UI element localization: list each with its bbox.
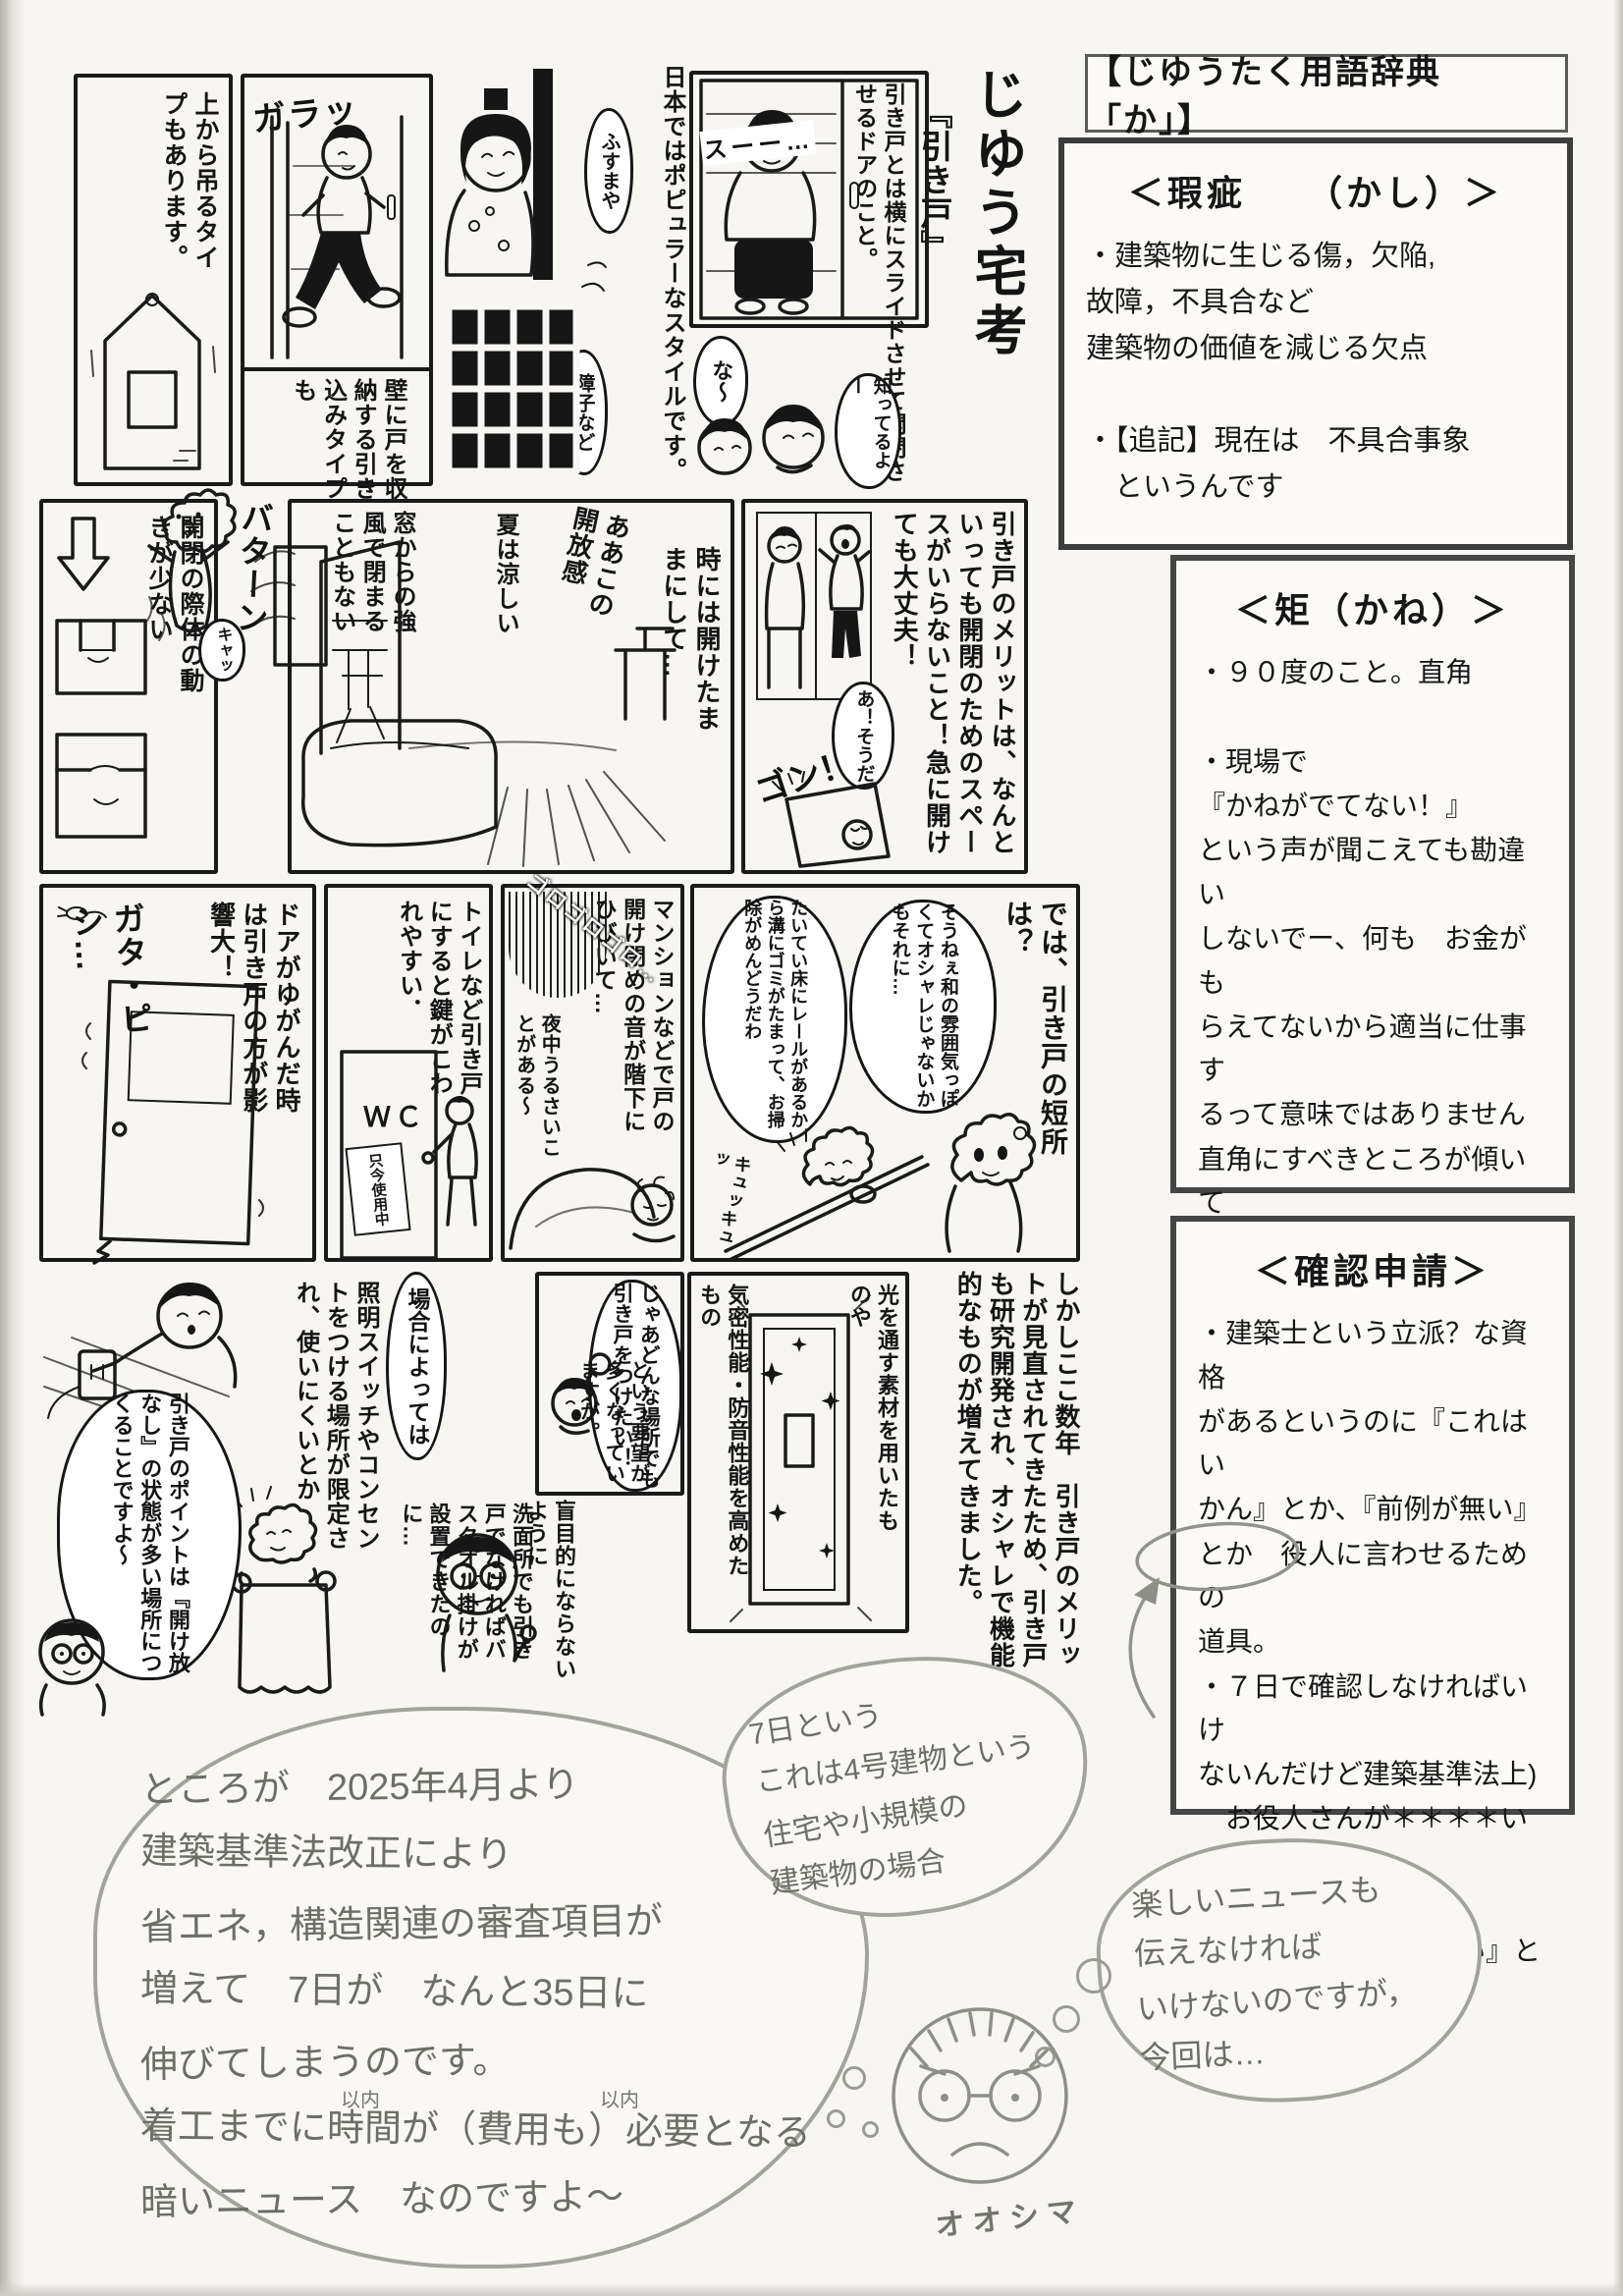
handwritten-note-inai2: 以内	[600, 2066, 639, 2135]
thought-trail-circle	[827, 2109, 845, 2128]
glass-door-drawing	[693, 75, 925, 324]
handwritten-news-lines: ところが 2025年4月より建築基準法改正により省エネ，構造関連の審査項目が増え…	[140, 1752, 822, 2233]
panel-hanging: 上から吊るタイプもあります。	[74, 74, 233, 486]
panel-glassdoor-reaction: な〜 知ってるよー	[687, 330, 1027, 493]
pencil-circle-7days	[1114, 1512, 1380, 1723]
panel-garatto: ガラッ 壁に戸を収納する引き込みタイプも	[241, 74, 433, 486]
scan-shadow-right	[1613, 0, 1623, 2296]
term-title-kakunin: ＜確認申請＞	[1198, 1243, 1547, 1294]
scan-shadow-left	[0, 0, 26, 2296]
term-box-kane: ＜矩（かね）＞ ・９０度のこと。直角・現場で『かねがでてない！』という声が聞こえ…	[1170, 555, 1575, 1193]
handwritten-4gou-lines: 7日というこれは4号建物という住宅や小規模の建築物の場合	[745, 1667, 1069, 1911]
handwritten-note-inai1: 以内	[341, 2066, 380, 2135]
thought-trail-circle	[862, 2121, 879, 2138]
sparkle-door-drawing	[738, 1297, 866, 1621]
speech-bubble-baai: 場合によっては	[386, 1272, 447, 1460]
fusuma-caption: 日本ではポピュラーなスタイルです。	[656, 65, 686, 495]
panel-merit: 引き戸のメリットは、なんといっても開閉のためのスペースがいらないこと！急に開けて…	[741, 499, 1028, 874]
merit-caption: 引き戸のメリットは、なんといっても開閉のためのスペースがいらないこと！急に開けて…	[888, 511, 1018, 870]
wc-sign-label: ＷＣ	[363, 1096, 426, 1135]
speech-bubble-rail: たいてい床にレールがあるから溝にゴミがたまって、お掃除がめんどうだわ	[702, 896, 847, 1143]
two-men-drawing	[687, 387, 835, 495]
term-title-kashi: ＜瑕疵 （かし）＞	[1086, 165, 1545, 216]
scan-shadow-bottom	[0, 2282, 1623, 2296]
panel-outlet: 場合によっては 照明スイッチやコンセントをつける場所が限定され、使いにくいとか …	[25, 1269, 457, 1721]
panel-wind: バターン キャッ	[137, 444, 339, 684]
thought-trail-circle	[1076, 1958, 1111, 1994]
warped-door-drawing	[51, 905, 297, 1259]
panel-warp: ドアがゆがんだ時は引き戸の方が影響大！ ガタ・ピシ…	[39, 884, 316, 1262]
bumped-box-drawing	[773, 770, 900, 868]
scanned-comic-page: 【じゆうたく用語辞典 「か」】 ＜瑕疵 （かし）＞ ・建築物に生じる傷，欠陥,故…	[0, 0, 1623, 2296]
dictionary-title: 【じゆうたく用語辞典 「か」】	[1088, 45, 1565, 141]
term-body-kashi: ・建築物に生じる傷，欠陥,故障，不具合など建築物の価値を減じる欠点・【追記】現在…	[1086, 234, 1545, 511]
panel-mansion: マンションなどで戸の開け閉めの音が階下にひびいて… ゴロゴロゴロ… 夜中うるさい…	[501, 884, 684, 1262]
living-room-drawing	[292, 503, 730, 870]
dictionary-header-box: 【じゆうたく用語辞典 「か」】	[1085, 54, 1568, 133]
two-women-drawing	[716, 1121, 1069, 1259]
fist-caption: という要望が多くなっていますが。	[574, 1360, 650, 1498]
sleeper-drawing	[507, 1128, 678, 1256]
term-title-kane: ＜矩（かね）＞	[1198, 582, 1547, 633]
running-man-drawing	[244, 78, 429, 362]
panel-wc: トイレなど引き戸にすると鍵がこわれやすい． ＷＣ 只今使用中	[324, 884, 493, 1262]
oshima-face-drawing	[882, 1990, 1083, 2196]
panel-kenkyu: しかしここ数年 引き戸のメリットが見直されてきたため、引き戸も研究開発され、オシ…	[911, 1269, 1084, 1681]
panel-sparkle: 光を通す素材を用いたものや 気密性能・防音性能を高めたもの	[687, 1272, 909, 1633]
handwritten-tanoshii-cloud: 楽しいニュースも伝えなければいけないのですが，今回は…	[1091, 1829, 1488, 2111]
hanging-caption: 上から吊るタイプもあります。	[158, 91, 221, 288]
kenkyu-caption: しかしここ数年 引き戸のメリットが見直されてきたため、引き戸も研究開発され、オシ…	[951, 1271, 1082, 1675]
in-use-sign: 只今使用中	[345, 1142, 410, 1236]
pencil-arrowhead	[1134, 1577, 1160, 1605]
speech-bubble-shitteru: 知ってるよー	[835, 373, 901, 489]
garatto-caption-divider	[244, 367, 429, 371]
panel-tansho: では、引き戸の短所は？ そうねぇ和の雰囲気っぽくてオシャレじゃないかもそれに… …	[690, 884, 1080, 1262]
speech-bubble-kya: キャッ	[198, 619, 245, 682]
term-box-kashi: ＜瑕疵 （かし）＞ ・建築物に生じる傷，欠陥,故障，不具合など建築物の価値を減じ…	[1058, 137, 1573, 550]
panel-glassdoor: スーー…	[689, 71, 929, 328]
thought-trail-circle	[842, 2066, 866, 2090]
fusuma-scene-drawing	[435, 59, 631, 491]
handwritten-tanoshii-lines: 楽しいニュースも伝えなければいけないのですが，今回は…	[1130, 1862, 1451, 2086]
series-title: じゆう宅考	[961, 67, 1029, 371]
advisor-man-drawing	[25, 1595, 118, 1718]
panel-living: 窓からの強風で閉まることもない 夏は涼しい ああこの開放感 時には開けたままにし…	[288, 499, 734, 874]
speech-bubble-wafuu: そうねぇ和の雰囲気っぽくてオシャレじゃないかもそれに…	[849, 900, 997, 1114]
panel-fusuma: 日本ではポピュラーなスタイルです。 ふすまや 障子など	[435, 59, 686, 493]
outlet-caption: 照明スイッチやコンセントをつける場所が限定され、使いにくいとか	[290, 1281, 380, 1554]
